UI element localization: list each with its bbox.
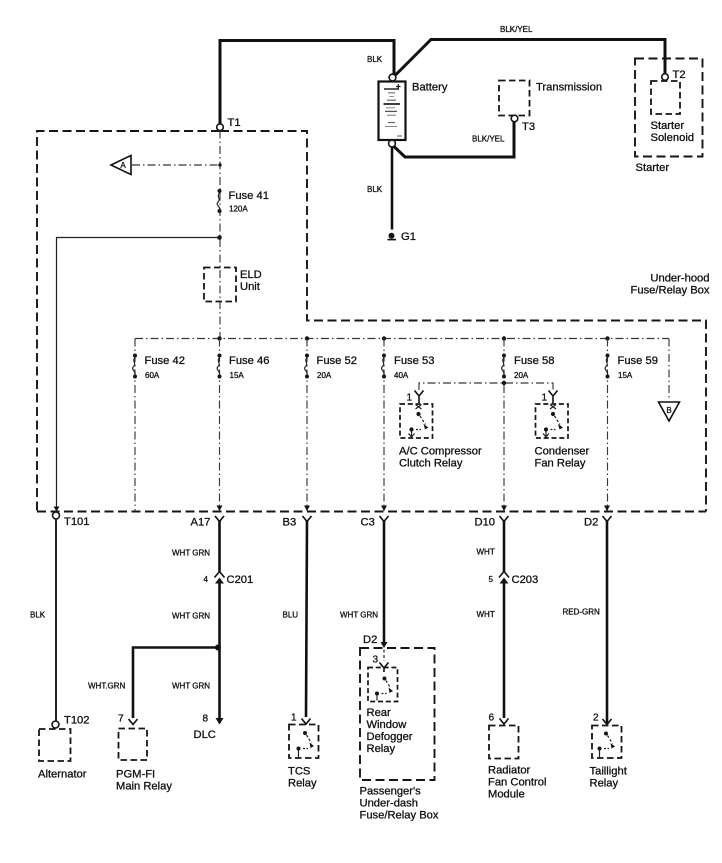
svg-text:T101: T101 [64,516,90,528]
svg-text:BLK: BLK [367,185,383,194]
svg-text:Radiator: Radiator [488,765,531,777]
svg-text:C201: C201 [227,574,254,586]
svg-text:DLC: DLC [194,729,216,741]
svg-text:WHT GRN: WHT GRN [340,611,378,620]
svg-text:5: 5 [489,575,494,584]
svg-text:Unit: Unit [240,281,261,293]
svg-text:15A: 15A [230,371,245,380]
svg-text:B: B [666,406,671,415]
svg-text:D2: D2 [363,634,377,646]
svg-text:Main Relay: Main Relay [116,781,172,793]
svg-text:PGM-FI: PGM-FI [116,769,155,781]
svg-text:Fan Control: Fan Control [488,777,546,789]
svg-text:Relay: Relay [590,778,619,790]
svg-text:BLK: BLK [30,611,46,620]
svg-text:A17: A17 [191,517,211,529]
svg-text:1: 1 [406,393,412,404]
svg-text:Fuse 46: Fuse 46 [229,355,269,367]
svg-text:20A: 20A [317,371,332,380]
svg-text:Starter: Starter [651,120,685,132]
svg-text:Fuse/Relay Box: Fuse/Relay Box [631,285,710,297]
svg-text:Fuse 53: Fuse 53 [394,355,434,367]
svg-text:120A: 120A [229,205,248,214]
svg-text:BLK: BLK [367,55,383,64]
svg-text:BLU: BLU [283,611,299,620]
svg-text:Alternator: Alternator [38,769,87,781]
svg-text:A/C Compressor: A/C Compressor [399,446,482,458]
svg-text:WHT GRN: WHT GRN [172,682,210,691]
svg-text:6: 6 [488,713,494,724]
svg-text:Fan Relay: Fan Relay [535,458,586,470]
svg-text:D2: D2 [584,517,598,529]
svg-text:WHT GRN: WHT GRN [172,549,210,558]
svg-text:B3: B3 [283,517,297,529]
svg-text:WHT: WHT [477,610,495,619]
svg-text:Relay: Relay [288,778,317,790]
svg-text:Starter: Starter [636,162,670,174]
svg-text:Transmission: Transmission [536,82,602,94]
svg-text:Defogger: Defogger [367,731,413,743]
svg-text:WHT: WHT [477,548,495,557]
svg-text:Under-dash: Under-dash [360,798,418,810]
svg-text:BLK/YEL: BLK/YEL [500,25,533,34]
svg-text:T102: T102 [64,715,90,727]
svg-text:20A: 20A [514,371,529,380]
svg-text:Rear: Rear [367,707,392,719]
svg-text:A: A [120,161,126,170]
svg-text:15A: 15A [618,371,633,380]
svg-text:G1: G1 [401,231,416,243]
svg-text:RED-GRN: RED-GRN [563,608,601,617]
svg-text:Fuse 52: Fuse 52 [317,355,357,367]
svg-text:T1: T1 [228,117,241,129]
svg-text:TCS: TCS [288,766,310,778]
svg-text:Solenoid: Solenoid [651,132,695,144]
svg-text:2: 2 [593,713,599,724]
svg-text:60A: 60A [145,371,160,380]
svg-text:WHT GRN: WHT GRN [172,612,210,621]
svg-text:Battery: Battery [412,82,448,94]
svg-text:Under-hood: Under-hood [650,273,709,285]
svg-text:Taillight: Taillight [590,766,628,778]
svg-text:C203: C203 [512,574,539,586]
svg-text:BLK/YEL: BLK/YEL [472,135,505,144]
svg-text:Window: Window [367,719,408,731]
svg-text:Passenger's: Passenger's [360,786,422,798]
svg-text:ELD: ELD [240,269,262,281]
svg-text:1: 1 [291,713,297,724]
svg-text:Condenser: Condenser [535,446,590,458]
svg-text:D10: D10 [475,517,496,529]
svg-text:Clutch Relay: Clutch Relay [399,458,463,470]
svg-text:Fuse 59: Fuse 59 [618,355,658,367]
svg-text:8: 8 [202,714,208,725]
svg-text:4: 4 [204,575,209,584]
svg-text:+: + [396,82,401,91]
svg-text:C3: C3 [361,517,375,529]
svg-text:T3: T3 [522,121,535,133]
svg-text:Fuse 41: Fuse 41 [229,190,269,202]
svg-text:3: 3 [372,655,378,666]
svg-text:Fuse 42: Fuse 42 [145,355,185,367]
svg-text:1: 1 [541,393,547,404]
svg-text:Relay: Relay [367,743,396,755]
svg-text:40A: 40A [394,371,409,380]
svg-text:WHT.GRN: WHT.GRN [88,682,126,691]
svg-text:Fuse/Relay Box: Fuse/Relay Box [360,810,439,822]
svg-text:Fuse 58: Fuse 58 [514,355,554,367]
svg-text:7: 7 [118,714,124,725]
svg-text:T2: T2 [673,69,686,81]
svg-text:Module: Module [488,789,525,801]
